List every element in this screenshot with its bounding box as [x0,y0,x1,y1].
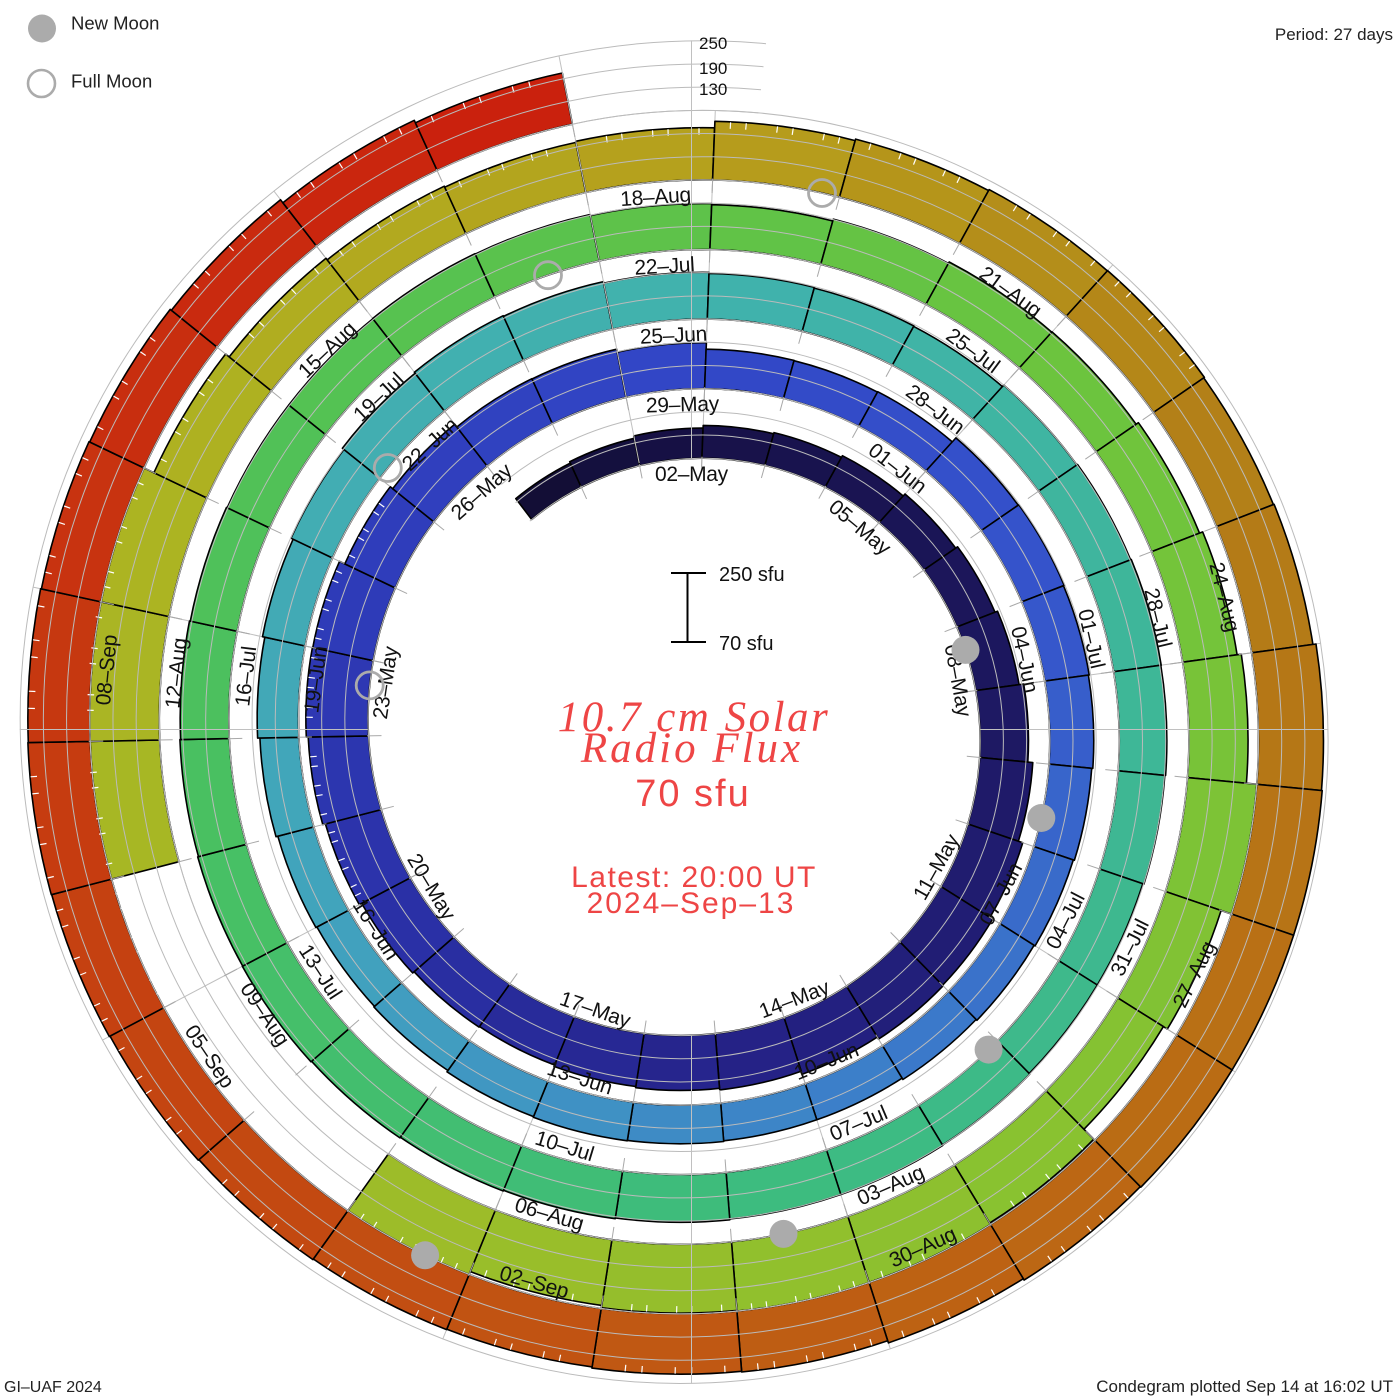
svg-text:Full Moon: Full Moon [71,71,152,92]
svg-text:190: 190 [699,59,727,78]
svg-text:Radio Flux: Radio Flux [580,725,803,772]
svg-text:130: 130 [699,80,727,99]
svg-text:250 sfu: 250 sfu [719,564,785,586]
svg-text:GI–UAF 2024: GI–UAF 2024 [4,1379,102,1396]
svg-text:New Moon: New Moon [71,13,159,34]
svg-text:Condegram plotted Sep 14 at 16: Condegram plotted Sep 14 at 16:02 UT [1096,1377,1393,1396]
svg-text:2024–Sep–13: 2024–Sep–13 [587,887,796,920]
svg-text:70 sfu: 70 sfu [719,633,773,655]
svg-text:70 sfu: 70 sfu [635,773,751,815]
svg-text:25–Jun: 25–Jun [639,323,707,349]
svg-text:Period: 27 days: Period: 27 days [1275,25,1393,44]
svg-text:250: 250 [699,34,727,53]
svg-text:02–May: 02–May [655,463,729,486]
svg-text:22–Jul: 22–Jul [634,253,695,279]
svg-text:29–May: 29–May [646,392,720,417]
svg-text:18–Aug: 18–Aug [619,183,691,211]
